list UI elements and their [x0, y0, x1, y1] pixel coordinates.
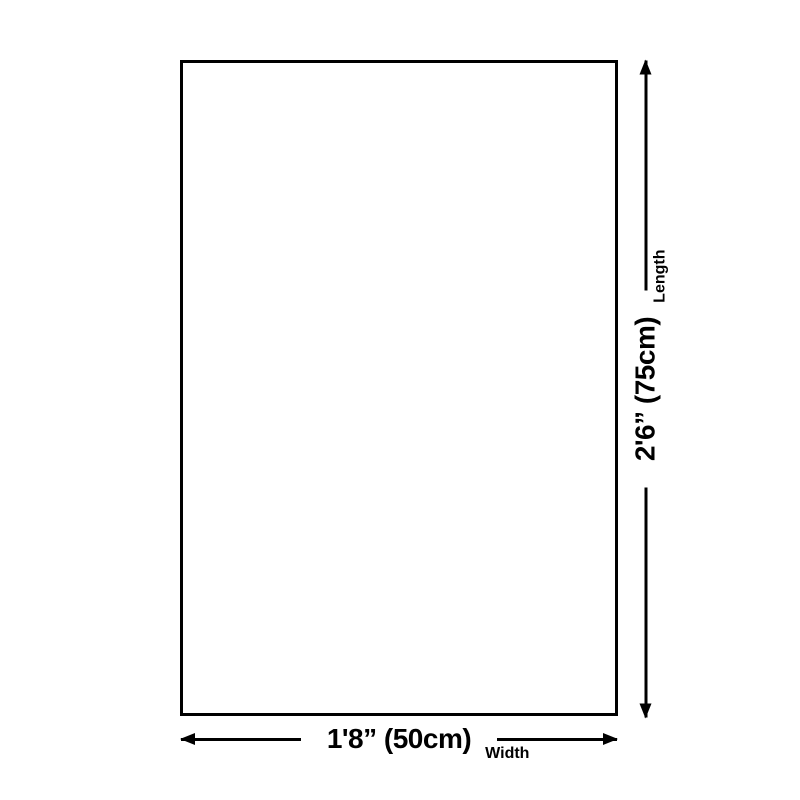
width-dimension-value: 1'8” (50cm) [301, 725, 497, 753]
arrow-left-icon [180, 733, 195, 745]
width-arrow-left-segment [181, 738, 301, 741]
width-dimension-arrow: 1'8” (50cm) Width [181, 724, 617, 754]
length-dimension-value: 2'6” (75cm) [632, 291, 660, 487]
length-label: Length [652, 250, 668, 303]
length-arrow-top-segment: Length [644, 61, 647, 291]
length-arrow-bottom-segment [644, 487, 647, 717]
dimension-diagram: 1'8” (50cm) Width 2'6” (75cm) Length [0, 0, 800, 800]
arrow-down-icon [640, 704, 652, 719]
product-outline-rectangle [180, 60, 618, 716]
arrow-up-icon [640, 60, 652, 75]
length-dimension-arrow: 2'6” (75cm) Length [631, 61, 661, 718]
width-label: Width [485, 746, 529, 762]
arrow-right-icon [603, 733, 618, 745]
width-arrow-right-segment: Width [497, 738, 617, 741]
